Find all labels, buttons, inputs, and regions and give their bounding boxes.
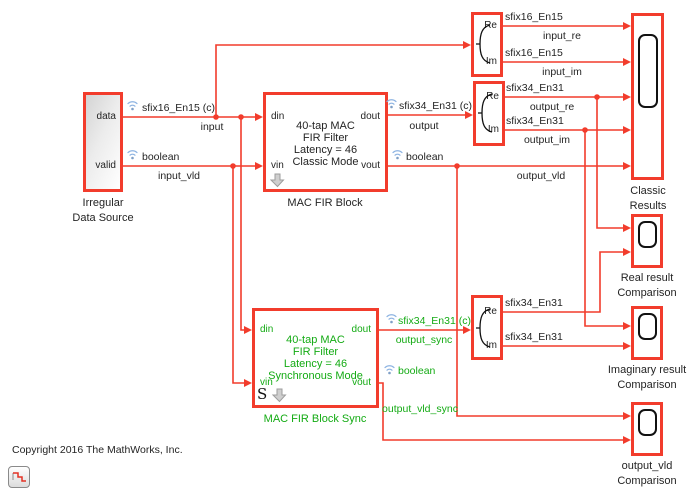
signal-name-output-re[interactable]: output_re [530,102,574,113]
reim-brace-glyph [477,89,493,137]
signal-type-output-vld: boolean [406,152,443,163]
signal-type-output-im: sfix34_En31 [506,116,564,127]
signal-type-sync-im: sfix34_En31 [505,332,563,343]
block-mac-fir-sync[interactable]: din vin dout vout 40-tap MAC FIR Filter … [252,308,379,408]
scope-screen [638,409,657,436]
signal-type-input: sfix16_En15 (c) [142,103,215,114]
signal-name-output[interactable]: output [409,121,438,132]
down-arrow-icon [272,388,287,403]
scope-label-classic-results: Classic Results [630,184,667,214]
simulink-model-canvas: data valid Irregular Data Source din vin… [0,0,695,498]
sample-time-legend-badge[interactable] [8,466,30,488]
block-complex-to-reim-input[interactable]: Re Im [471,12,503,77]
block-label-mac-fir-sync: MAC FIR Block Sync [264,412,367,427]
signal-name-input[interactable]: input [201,122,224,133]
signal-name-input-im[interactable]: input_im [542,67,582,78]
block-label-mac-fir-classic: MAC FIR Block [287,196,362,211]
reim-brace-glyph [475,304,491,352]
scope-screen [638,221,657,248]
signal-type-sync-re: sfix34_En31 [505,298,563,309]
scope-screen [638,34,658,108]
signal-streaming-icon[interactable] [391,148,404,161]
signal-streaming-icon[interactable] [385,97,398,110]
reim-brace-glyph [475,20,491,68]
scope-label-output-vld: output_vld Comparison [617,459,676,489]
block-label-irregular-data-source: Irregular Data Source [72,196,133,226]
wire-input-vld-branch-down[interactable] [233,166,244,383]
signal-type-input-im: sfix16_En15 [505,48,563,59]
port-label-valid: valid [95,160,116,172]
signal-name-input-re[interactable]: input_re [543,31,581,42]
signal-name-input-vld[interactable]: input_vld [158,171,200,182]
wire-output-re-branch[interactable] [597,97,623,228]
wire-input-branch-down[interactable] [241,117,244,330]
scope-label-imaginary-result: Imaginary result Comparison [608,363,686,393]
signal-type-input-vld: boolean [142,152,179,163]
block-complex-to-reim-output[interactable]: Re Im [473,81,505,146]
block-body-sync: 40-tap MAC FIR Filter Latency = 46 Synch… [255,334,376,382]
signal-type-output-sync: sfix34_En31 (c) [398,316,471,327]
signal-streaming-icon[interactable] [126,99,139,112]
scope-imaginary-result-comparison[interactable] [631,306,663,360]
down-arrow-icon [270,173,285,188]
scope-real-result-comparison[interactable] [631,214,663,268]
signal-type-output-vld-sync: boolean [398,366,435,377]
signal-name-output-sync[interactable]: output_sync [396,335,453,346]
copyright-annotation: Copyright 2016 The MathWorks, Inc. [12,444,183,456]
signal-streaming-icon[interactable] [385,312,398,325]
block-body-classic: 40-tap MAC FIR Filter Latency = 46 Class… [266,120,385,168]
wire-output-vld-branch[interactable] [457,166,623,416]
signal-name-output-vld-sync[interactable]: output_vld_sync [382,404,458,415]
scope-label-real-result: Real result Comparison [617,271,676,301]
signal-type-output: sfix34_En31 (c) [399,101,472,112]
signal-type-output-re: sfix34_En31 [506,83,564,94]
scope-classic-results[interactable] [631,13,664,180]
signal-name-output-im[interactable]: output_im [524,135,570,146]
block-mac-fir-classic[interactable]: din vin dout vout 40-tap MAC FIR Filter … [263,92,388,192]
signal-type-input-re: sfix16_En15 [505,12,563,23]
port-label-data: data [97,111,116,123]
block-irregular-data-source[interactable]: data valid [83,92,123,192]
scope-output-vld-comparison[interactable] [631,402,663,456]
synchronous-mode-s-badge: S [257,387,267,402]
signal-streaming-icon[interactable] [126,148,139,161]
step-waveform-icon [9,467,29,487]
block-complex-to-reim-sync[interactable]: Re Im [471,295,503,360]
signal-streaming-icon[interactable] [383,363,396,376]
scope-screen [638,313,657,340]
signal-name-output-vld[interactable]: output_vld [517,171,565,182]
